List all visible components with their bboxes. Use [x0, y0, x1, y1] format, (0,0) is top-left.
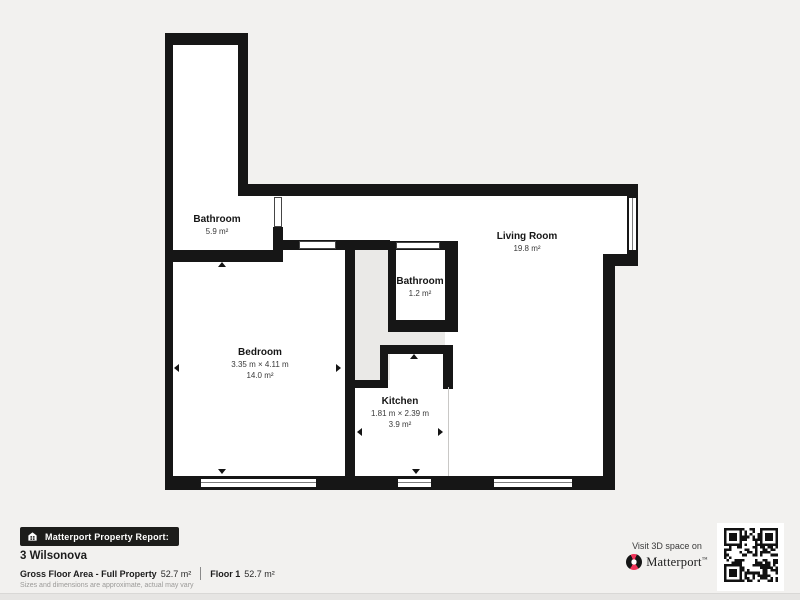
wall — [388, 320, 458, 332]
matterport-wordmark: Matterport™ — [646, 555, 708, 570]
door — [396, 242, 440, 249]
dimension-arrow — [218, 262, 226, 267]
wall — [273, 227, 283, 256]
window — [397, 478, 432, 488]
room-dimensions: 3.35 m × 4.11 m — [231, 359, 288, 370]
wall — [603, 254, 615, 490]
door — [299, 241, 336, 249]
matterport-logo-icon — [626, 554, 642, 570]
wall — [348, 380, 388, 388]
room-label-kitchen: Kitchen 1.81 m × 2.39 m 3.9 m² — [371, 395, 429, 430]
wall — [165, 250, 283, 262]
dimension-arrow — [357, 428, 362, 436]
property-name: 3 Wilsonova — [20, 550, 87, 562]
room-label-bathroom-main: Bathroom 5.9 m² — [193, 213, 240, 237]
wall — [345, 240, 355, 480]
room-area: 5.9 m² — [193, 226, 240, 237]
page-bottom-edge — [0, 593, 800, 600]
room-name: Bedroom — [231, 346, 288, 359]
visit-text: Visit 3D space on — [632, 541, 702, 551]
dimension-arrow — [412, 469, 420, 474]
dimension-arrow — [336, 364, 341, 372]
qr-code[interactable] — [724, 528, 778, 587]
room-dimensions: 1.81 m × 2.39 m — [371, 408, 429, 419]
window — [628, 197, 637, 251]
badge-label: Matterport Property Report: — [45, 532, 169, 542]
room-divider-line — [448, 387, 449, 476]
room-area: 3.9 m² — [371, 419, 429, 430]
hallway-fill — [350, 330, 445, 346]
visit-3d-space-link[interactable]: Visit 3D space on Matterport™ — [612, 541, 722, 570]
room-name: Kitchen — [371, 395, 429, 408]
door — [274, 197, 282, 227]
room-label-bedroom: Bedroom 3.35 m × 4.11 m 14.0 m² — [231, 346, 288, 381]
room-name: Bathroom — [193, 213, 240, 226]
property-report-page: Bathroom 5.9 m² Living Room 19.8 m² Bath… — [0, 0, 800, 600]
wall — [388, 241, 396, 332]
qr-card — [717, 523, 784, 591]
floor-label: Floor 1 — [210, 569, 240, 579]
wall — [445, 241, 458, 332]
divider — [200, 567, 201, 580]
dimension-arrow — [174, 364, 179, 372]
wall — [165, 33, 248, 45]
dimension-arrow — [218, 469, 226, 474]
gfa-label: Gross Floor Area - Full Property — [20, 569, 157, 579]
house-icon — [27, 531, 38, 542]
gfa-value: 52.7 m² — [161, 569, 192, 579]
window — [493, 478, 573, 488]
dimension-arrow — [438, 428, 443, 436]
window — [200, 478, 317, 488]
wall — [238, 184, 638, 196]
area-metrics: Gross Floor Area - Full Property 52.7 m²… — [20, 567, 275, 580]
room-area: 19.8 m² — [497, 243, 558, 254]
room-area: 1.2 m² — [396, 288, 443, 299]
matterport-brand: Matterport™ — [626, 554, 708, 570]
room-label-living-room: Living Room 19.8 m² — [497, 230, 558, 254]
room-name: Bathroom — [396, 275, 443, 288]
wall — [238, 33, 248, 193]
floor-value: 52.7 m² — [244, 569, 275, 579]
room-name: Living Room — [497, 230, 558, 243]
report-badge: Matterport Property Report: — [20, 527, 179, 546]
dimension-arrow — [410, 354, 418, 359]
room-label-bathroom-small: Bathroom 1.2 m² — [396, 275, 443, 299]
disclaimer-text: Sizes and dimensions are approximate, ac… — [20, 582, 194, 589]
room-area: 14.0 m² — [231, 370, 288, 381]
wall — [443, 345, 453, 389]
